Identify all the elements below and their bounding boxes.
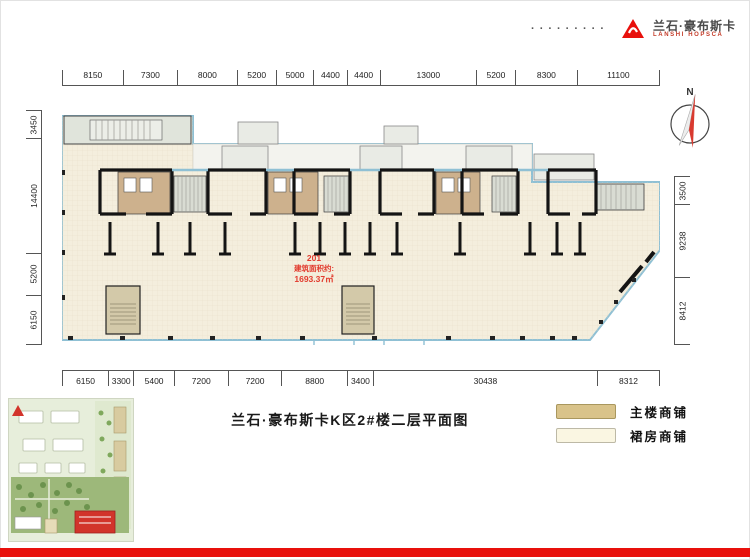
brand-logo: ········· 兰石·豪布斯卡 LANSHI HOPSCA xyxy=(531,18,736,40)
dimension-strip-bottom: 6150330054007200720088003400304388312 xyxy=(62,370,660,386)
unit-area-caption: 建筑面积约: xyxy=(293,263,334,273)
brand-logo-text: 兰石·豪布斯卡 LANSHI HOPSCA xyxy=(653,20,736,39)
legend-item-podium: 裙房商铺 xyxy=(556,426,688,445)
dim-label: 8800 xyxy=(281,371,347,386)
dimension-strip-top: 8150730080005200500044004400130005200830… xyxy=(62,70,660,86)
legend-item-main: 主楼商铺 xyxy=(556,402,688,421)
dim-label: 7200 xyxy=(228,371,282,386)
dim-label: 8300 xyxy=(515,70,577,85)
dim-label: 8150 xyxy=(62,70,123,85)
dim-label: 5200 xyxy=(26,253,41,295)
dim-label: 7300 xyxy=(123,70,177,85)
legend-label-main: 主楼商铺 xyxy=(630,402,688,421)
dim-label: 3300 xyxy=(108,371,133,386)
dim-label: 8312 xyxy=(597,371,660,386)
floor-plan: 201 建筑面积约: 1693.37㎡ xyxy=(62,110,660,345)
dim-label: 5200 xyxy=(476,70,515,85)
dim-label: 4400 xyxy=(313,70,346,85)
dim-label: 6150 xyxy=(26,295,41,345)
stair-block-topleft xyxy=(64,116,191,144)
north-label: N xyxy=(686,87,693,98)
current-building-highlight xyxy=(75,511,115,533)
dim-label: 8000 xyxy=(177,70,237,85)
stair-block-bottom-mid xyxy=(342,286,374,334)
drawing-sheet: ········· 兰石·豪布斯卡 LANSHI HOPSCA 81507300… xyxy=(0,0,750,560)
dim-label: 4400 xyxy=(347,70,380,85)
dimension-strip-right: 350092388412 xyxy=(674,176,690,345)
dim-label: 6150 xyxy=(62,371,108,386)
dim-label: 11100 xyxy=(577,70,660,85)
site-key-map xyxy=(8,398,134,542)
dim-label: 7200 xyxy=(174,371,228,386)
dim-label: 9238 xyxy=(675,204,690,277)
drawing-title: 兰石·豪布斯卡K区2#楼二层平面图 xyxy=(170,410,530,430)
north-compass: N xyxy=(664,84,716,150)
legend: 主楼商铺 裙房商铺 xyxy=(556,402,688,445)
entrance-steps xyxy=(314,341,424,345)
dim-label: 3450 xyxy=(26,110,41,138)
dim-label: 13000 xyxy=(380,70,476,85)
dim-label: 5200 xyxy=(237,70,276,85)
legend-label-podium: 裙房商铺 xyxy=(630,426,688,445)
dim-label: 5400 xyxy=(133,371,174,386)
brand-logo-icon xyxy=(621,18,645,40)
stair-block-bottom-left xyxy=(106,286,140,334)
dim-label: 3400 xyxy=(347,371,373,386)
dim-label: 3500 xyxy=(675,176,690,204)
dim-label: 30438 xyxy=(373,371,597,386)
brand-name-cn: 兰石·豪布斯卡 xyxy=(653,20,736,33)
dim-label: 14400 xyxy=(26,138,41,252)
legend-swatch-main xyxy=(556,404,616,419)
brand-name-en: LANSHI HOPSCA xyxy=(653,32,736,38)
unit-area-value: 1693.37㎡ xyxy=(294,274,334,284)
dim-label: 5000 xyxy=(276,70,314,85)
footer-accent-bar xyxy=(0,548,750,557)
unit-number: 201 xyxy=(307,253,321,263)
legend-swatch-podium xyxy=(556,428,616,443)
dim-label: 8412 xyxy=(675,277,690,345)
dimension-strip-left: 34501440052006150 xyxy=(26,110,42,345)
logo-dots: ········· xyxy=(531,23,609,35)
